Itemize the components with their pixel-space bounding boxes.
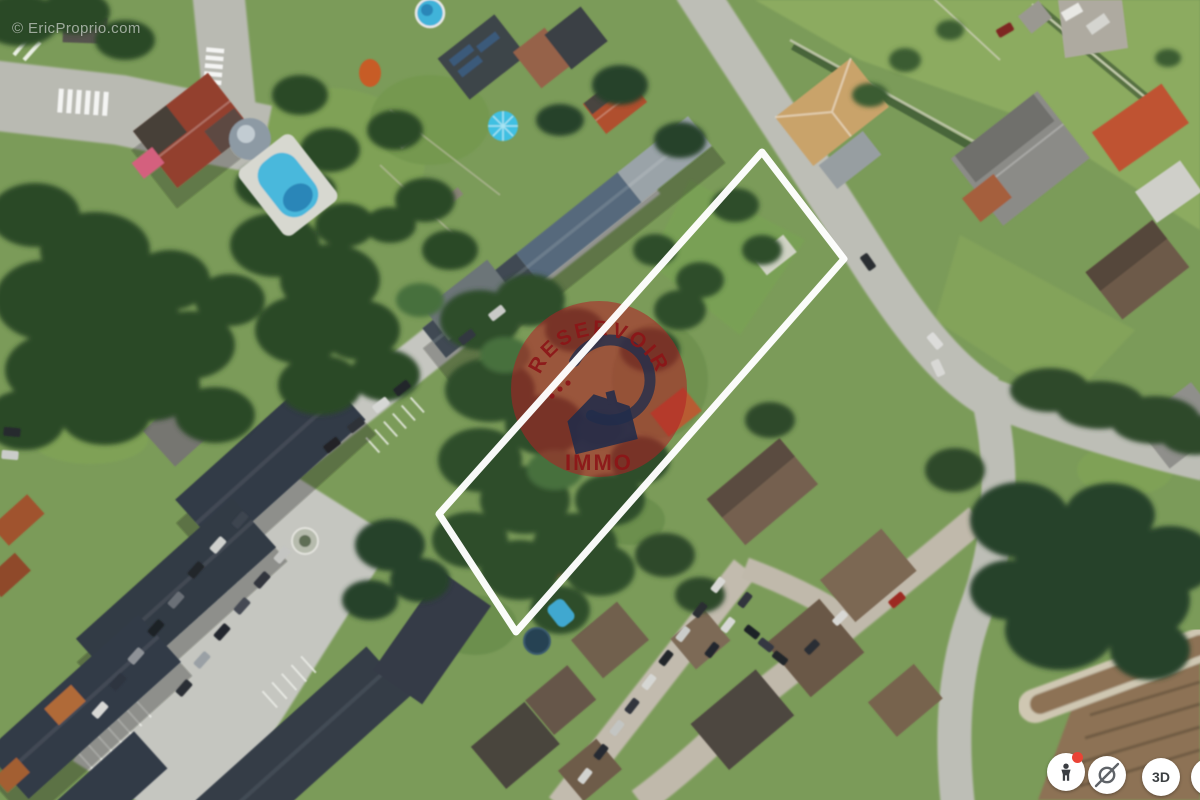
satellite-imagery: RESERVOIR IMMO	[0, 0, 1200, 800]
map-stage[interactable]: RESERVOIR IMMO © EricProprio.com 3D	[0, 0, 1200, 800]
compass-tilt-icon	[1094, 762, 1120, 788]
garden-umbrella	[488, 111, 518, 141]
agency-watermark: RESERVOIR IMMO	[511, 301, 687, 477]
pegman-icon	[1055, 761, 1077, 783]
view-3d-button[interactable]: 3D	[1142, 758, 1180, 796]
pegman-button[interactable]	[1047, 753, 1085, 791]
logo-immo-text: IMMO	[565, 450, 633, 475]
pegman-badge	[1072, 752, 1083, 763]
copyright-watermark: © EricProprio.com	[12, 20, 141, 37]
rotate-tilt-button[interactable]	[1088, 756, 1126, 794]
